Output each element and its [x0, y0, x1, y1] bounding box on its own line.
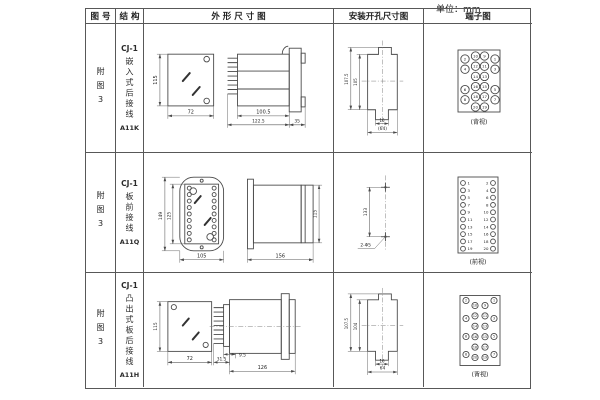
- terminal-view-caption: (前视): [470, 258, 487, 266]
- terminal-pin-number: 18: [484, 239, 489, 244]
- terminal-pin-number: 3: [468, 188, 471, 193]
- terminal-pin-number: 5: [494, 87, 497, 92]
- terminal-pin-number: 17: [483, 345, 487, 349]
- structure-code: A11H: [120, 371, 140, 379]
- terminal-pin-number: 10: [484, 210, 489, 215]
- terminal-pin-number: 15: [483, 335, 487, 339]
- terminal-pin: [461, 181, 466, 186]
- outline-drawing-row3: 115 72 9.5: [144, 273, 334, 387]
- dim-label: 35: [294, 118, 300, 124]
- terminal-pin-number: 3: [493, 317, 495, 321]
- dim-label: 156: [276, 253, 285, 259]
- fig-no-row1: 附图3: [86, 24, 116, 153]
- dim-label: 31.5: [217, 356, 227, 362]
- dim-label: 107.5: [344, 317, 349, 329]
- terminal-pin-number: 20: [473, 104, 478, 109]
- fig-no-row3: 附图3: [86, 273, 116, 387]
- terminal-pin-number: 12: [473, 64, 478, 69]
- dim-label: 115: [153, 75, 159, 84]
- fig-no-text: 附图3: [95, 191, 106, 234]
- terminal-pin-number: 1: [468, 181, 471, 186]
- front-view: 115 72: [153, 54, 214, 119]
- dim-label: 100.5: [256, 109, 270, 115]
- structure-row1: CJ-1 嵌入式后接线 A11K: [116, 24, 144, 153]
- terminal-pin-number: 9: [484, 304, 486, 308]
- terminal-view-caption: (背视): [471, 118, 488, 126]
- terminal-pin-number: 10: [473, 304, 477, 308]
- terminal-pin: [491, 181, 496, 186]
- terminal-pin-number: 17: [482, 94, 487, 99]
- terminal-pin-number: 19: [468, 246, 473, 251]
- fig-no-row2: 附图3: [86, 153, 116, 273]
- terminal-pin-number: 18: [473, 345, 477, 349]
- structure-row2: CJ-1 板前接线 A11Q: [116, 153, 144, 273]
- terminal-pin-number: 19: [482, 104, 487, 109]
- terminal-pin-number: 11: [483, 314, 487, 318]
- dim-label: 149: [158, 212, 164, 221]
- terminal-pin: [461, 246, 466, 251]
- mounting-svg-row2: 133 2-Φ5: [334, 153, 423, 272]
- dim-label: 104: [353, 322, 358, 330]
- spec-table: 图 号 结 构 外 形 尺 寸 图 安装开孔尺寸图 端子图 附图3 CJ-1 嵌…: [85, 8, 531, 389]
- terminal-pin-number: 13: [468, 224, 473, 229]
- terminal-pin: [461, 203, 466, 208]
- mounting-drawing-row3: 107.5 104 16 64: [334, 273, 424, 387]
- terminal-pin: [491, 210, 496, 215]
- structure-name: 凸出式板后接线: [124, 294, 135, 368]
- terminal-pin-number: 11: [468, 217, 473, 222]
- terminal-pin-number: 3: [494, 67, 497, 72]
- outline-svg-row2: 149 125 105: [144, 153, 333, 272]
- structure-model: CJ-1: [121, 179, 138, 188]
- terminal-pin-number: 4: [486, 188, 489, 193]
- dim-label: 122.5: [252, 118, 265, 124]
- terminal-grid-1: 2109141211314136161558181772019: [461, 52, 499, 111]
- terminal-pin-number: 14: [473, 74, 478, 79]
- document-page: 单位：mm 图 号 结 构 外 形 尺 寸 图 安装开孔尺寸图 端子图 附图3 …: [0, 0, 600, 400]
- terminal-pin: [461, 195, 466, 200]
- terminal-pin-number: 2: [464, 56, 467, 61]
- terminal-pin-number: 13: [482, 74, 487, 79]
- terminal-pin-number: 9: [468, 210, 471, 215]
- terminal-grid-2: 1234567891011121314151617181920: [461, 181, 496, 252]
- terminal-pin-number: 7: [494, 97, 497, 102]
- terminal-pin-number: 16: [473, 335, 477, 339]
- side-view: 100.5 122.5 35: [228, 46, 306, 128]
- terminal-pin: [491, 246, 496, 251]
- mounting-svg-row1: 107.5 105 16 (64): [334, 24, 423, 152]
- terminal-pin-number: 7: [468, 202, 471, 207]
- terminal-pin: [461, 232, 466, 237]
- front-view: 149 125 105: [158, 177, 224, 263]
- dim-label: 133: [363, 208, 369, 217]
- terminal-pin-number: 13: [483, 324, 487, 328]
- terminal-pin-number: 1: [494, 56, 497, 61]
- terminal-pin-number: 1: [493, 299, 495, 303]
- terminal-drawing-row2: 1234567891011121314151617181920 (前视): [424, 153, 532, 273]
- terminal-svg-row1: 2109141211314136161558181772019 (背视): [424, 24, 532, 152]
- structure-model: CJ-1: [121, 44, 138, 53]
- terminal-pin: [491, 195, 496, 200]
- terminal-pin-number: 12: [473, 314, 477, 318]
- terminal-grid-3: 2468101214161820911131517191357: [463, 297, 497, 360]
- terminal-pin: [461, 210, 466, 215]
- side-view: 156 115: [247, 179, 322, 263]
- header-mounting: 安装开孔尺寸图: [334, 9, 424, 24]
- terminal-view-caption: (背视): [472, 371, 489, 379]
- terminal-pin-number: 18: [473, 94, 478, 99]
- mounting-drawing-row2: 133 2-Φ5: [334, 153, 424, 273]
- terminal-pin-number: 2: [486, 181, 489, 186]
- terminal-pin-number: 4: [465, 317, 467, 321]
- terminal-pin: [461, 188, 466, 193]
- terminal-pin-number: 2: [465, 299, 467, 303]
- terminal-pin-number: 6: [486, 195, 489, 200]
- terminal-pin-number: 14: [473, 324, 477, 328]
- terminal-pin-number: 9: [483, 53, 486, 58]
- terminal-pin-number: 7: [493, 353, 495, 357]
- hole-spec-label: 2-Φ5: [360, 243, 371, 249]
- terminal-pin-number: 20: [473, 356, 477, 360]
- terminal-pin: [491, 203, 496, 208]
- terminal-pin: [491, 188, 496, 193]
- dim-label: 126: [258, 365, 267, 371]
- terminal-pin-number: 17: [468, 239, 473, 244]
- dim-label: 107.5: [344, 73, 349, 85]
- header-terminal: 端子图: [424, 9, 532, 24]
- terminal-pin: [461, 217, 466, 222]
- structure-name: 板前接线: [124, 192, 135, 234]
- outline-svg-row3: 115 72 9.5: [144, 273, 333, 387]
- structure-code: A11K: [120, 124, 139, 132]
- outline-drawing-row1: 115 72 1: [144, 24, 334, 153]
- terminal-pin-number: 4: [464, 67, 467, 72]
- terminal-pin-number: 15: [468, 232, 473, 237]
- terminal-pin-number: 8: [486, 202, 489, 207]
- structure-row3: CJ-1 凸出式板后接线 A11H: [116, 273, 144, 387]
- front-view: 115 72: [153, 302, 212, 366]
- terminal-pin-number: 5: [468, 195, 471, 200]
- mounting-svg-row3: 107.5 104 16 64: [334, 273, 423, 387]
- side-view: 9.5 31.5 126: [210, 294, 302, 375]
- fig-no-text: 附图3: [95, 67, 106, 110]
- terminal-svg-row2: 1234567891011121314151617181920 (前视): [424, 153, 532, 272]
- terminal-pin-number: 16: [484, 232, 489, 237]
- terminal-pin-number: 5: [493, 335, 495, 339]
- terminal-svg-row3: 2468101214161820911131517191357 (背视): [424, 273, 532, 387]
- dim-label: 72: [187, 356, 193, 362]
- dim-label: 16: [379, 359, 385, 364]
- terminal-pin-number: 14: [484, 224, 489, 229]
- terminal-pin-number: 20: [484, 246, 489, 251]
- terminal-pin-number: 6: [465, 335, 467, 339]
- terminal-pin-number: 10: [473, 53, 478, 58]
- outline-svg-row1: 115 72 1: [144, 24, 333, 152]
- terminal-pin: [491, 224, 496, 229]
- mounting-drawing-row1: 107.5 105 16 (64): [334, 24, 424, 153]
- dim-label: 16: [379, 118, 385, 123]
- dim-label: 64: [380, 366, 386, 372]
- fig-no-text: 附图3: [95, 309, 106, 352]
- dim-label: 105: [353, 78, 358, 86]
- terminal-drawing-row1: 2109141211314136161558181772019 (背视): [424, 24, 532, 153]
- terminal-pin: [491, 239, 496, 244]
- terminal-pin: [491, 232, 496, 237]
- structure-name: 嵌入式后接线: [124, 57, 135, 120]
- terminal-pin-number: 8: [465, 353, 467, 357]
- terminal-pin-number: 11: [482, 64, 487, 69]
- header-fig-no: 图 号: [86, 9, 116, 24]
- structure-model: CJ-1: [121, 281, 138, 290]
- dim-label: (64): [378, 126, 387, 132]
- terminal-pin-number: 15: [482, 84, 487, 89]
- dim-label: 115: [153, 322, 159, 331]
- terminal-pin-number: 8: [464, 97, 467, 102]
- terminal-pin: [491, 217, 496, 222]
- dim-label: 105: [197, 253, 206, 259]
- dim-label: 72: [188, 109, 194, 115]
- terminal-drawing-row3: 2468101214161820911131517191357 (背视): [424, 273, 532, 387]
- terminal-pin-number: 12: [484, 217, 489, 222]
- terminal-pin-number: 19: [483, 356, 487, 360]
- dim-label: 115: [313, 210, 319, 219]
- structure-code: A11Q: [120, 238, 140, 246]
- terminal-pin-number: 16: [473, 84, 478, 89]
- header-outline: 外 形 尺 寸 图: [144, 9, 334, 24]
- header-structure: 结 构: [116, 9, 144, 24]
- terminal-pin-number: 6: [464, 87, 467, 92]
- terminal-pin: [461, 224, 466, 229]
- dim-label: 9.5: [239, 352, 246, 358]
- outline-drawing-row2: 149 125 105: [144, 153, 334, 273]
- dim-label: 125: [166, 212, 172, 221]
- terminal-pin: [461, 239, 466, 244]
